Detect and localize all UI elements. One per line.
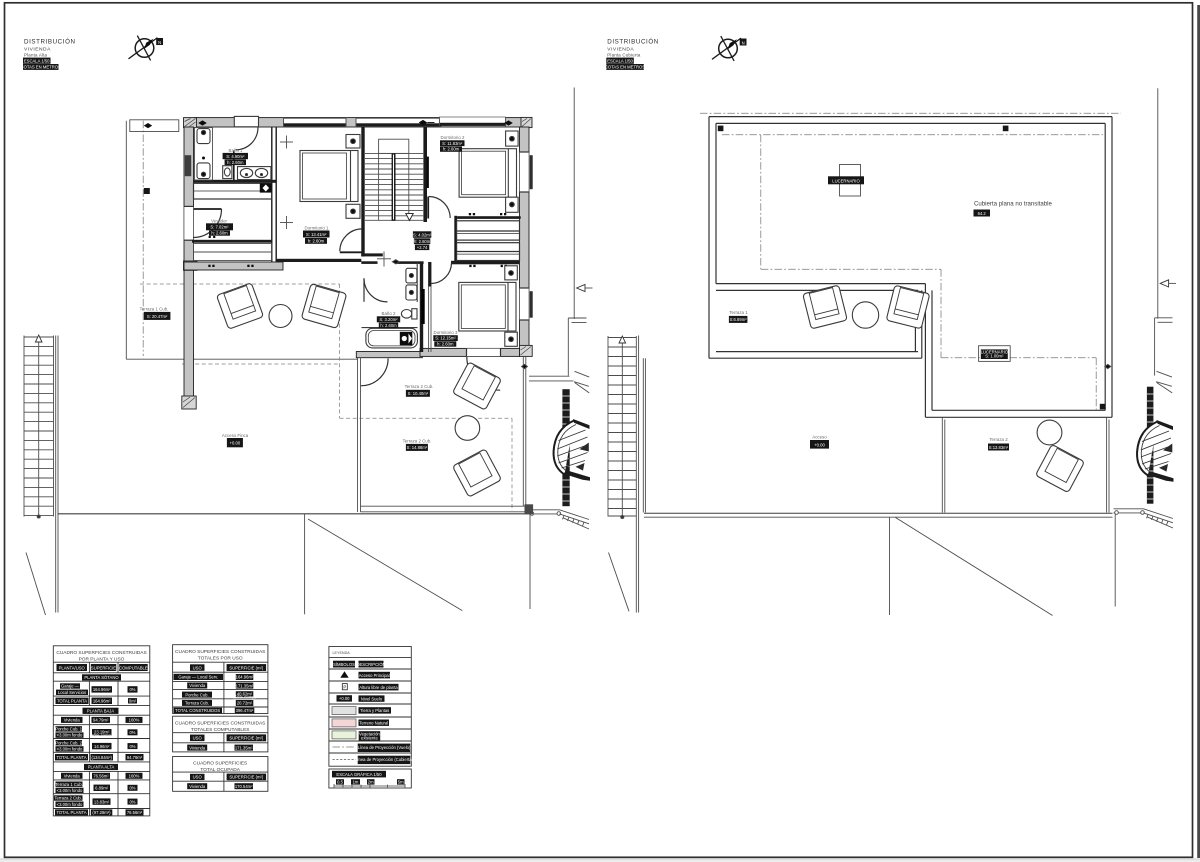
svg-text:94.79m²: 94.79m² (127, 755, 143, 760)
svg-text:h: 2.60m: h: 2.60m (380, 323, 397, 328)
svg-text:Terraza 1 Cub.: Terraza 1 Cub. (140, 307, 169, 312)
svg-text:Cubierta plana no transitable: Cubierta plana no transitable (974, 201, 1053, 208)
svg-text:DESCRIPCIÓN: DESCRIPCIÓN (356, 662, 385, 667)
svg-text:Dormitorio 2: Dormitorio 2 (441, 135, 465, 140)
svg-text:0%: 0% (129, 799, 135, 804)
svg-text:TOTAL OCUPADA: TOTAL OCUPADA (200, 767, 240, 773)
svg-text:Terraza 2 Cub.: Terraza 2 Cub. (54, 796, 81, 801)
svg-text:Planta Alta: Planta Alta (24, 52, 48, 57)
svg-text:Tierra y Plantas: Tierra y Plantas (360, 708, 389, 713)
svg-text:Terraza 1 Cub.: Terraza 1 Cub. (55, 782, 82, 787)
svg-text:S: 14.88m²: S: 14.88m² (407, 445, 428, 450)
svg-text:SUPERFICIE (m²): SUPERFICIE (m²) (229, 775, 264, 780)
svg-text:Baño 1: Baño 1 (229, 148, 243, 153)
svg-text:0%: 0% (129, 786, 135, 791)
svg-text:SÍMBOLOS: SÍMBOLOS (333, 662, 355, 667)
svg-text:Terraza 2 Cub.: Terraza 2 Cub. (403, 439, 432, 444)
svg-text:0m²: 0m² (129, 698, 137, 703)
svg-text:S: 10.40m²: S: 10.40m² (408, 391, 429, 396)
svg-text:Acceso Finca: Acceso Finca (222, 433, 249, 438)
svg-text:S: 3.20m²: S: 3.20m² (379, 317, 398, 322)
svg-text:Garaje — Local Serv.: Garaje — Local Serv. (178, 675, 218, 680)
svg-text:Vivienda: Vivienda (189, 745, 206, 750)
svg-text:N: N (158, 40, 161, 45)
svg-text:Acceso: Acceso (812, 434, 827, 439)
svg-text:h: 2.60m: h: 2.60m (227, 160, 244, 165)
svg-text:94.79m²: 94.79m² (93, 718, 109, 723)
svg-text:<3.00m fondo: <3.00m fondo (57, 747, 83, 752)
svg-text:PLANTA/USO: PLANTA/USO (59, 665, 86, 670)
svg-text:TOTALES POR USO: TOTALES POR USO (198, 656, 243, 662)
svg-text:2m: 2m (368, 779, 374, 784)
svg-text:164.96m²: 164.96m² (93, 687, 111, 692)
svg-text:170.54m²: 170.54m² (235, 784, 253, 789)
svg-text:171.35m²: 171.35m² (236, 683, 254, 688)
svg-text:64.2: 64.2 (978, 211, 987, 216)
svg-text:S: 7.02m²: S: 7.02m² (210, 225, 229, 230)
svg-text:<3.00m fondo: <3.00m fondo (57, 733, 83, 738)
svg-text:PLANTA ALTA: PLANTA ALTA (88, 765, 115, 770)
svg-text:ESCALA 1/50: ESCALA 1/50 (24, 58, 50, 63)
svg-text:20.72m²: 20.72m² (237, 701, 253, 706)
svg-text:S: 4.90m²: S: 4.90m² (226, 154, 245, 159)
svg-text:0%: 0% (129, 687, 135, 692)
svg-text:TOTAL PLANTA: TOTAL PLANTA (56, 810, 86, 815)
svg-text:S:6.89m²: S:6.89m² (730, 317, 748, 322)
svg-text:TOTALES COMPUTABLES: TOTALES COMPUTABLES (191, 727, 250, 733)
svg-text:Terraza Cub.: Terraza Cub. (185, 701, 209, 706)
svg-text:(97.28m²): (97.28m²) (92, 810, 111, 815)
svg-text:Planta Cubierta: Planta Cubierta (607, 52, 641, 57)
svg-text:76.56m²: 76.56m² (127, 810, 143, 815)
svg-text:N: N (742, 40, 745, 45)
svg-text:ESCALA 1/50: ESCALA 1/50 (607, 58, 633, 63)
svg-text:+0.00: +0.00 (339, 696, 350, 701)
svg-text:Línea de Proyección (Vuelo): Línea de Proyección (Vuelo) (358, 745, 411, 750)
svg-text:LEYENDA: LEYENDA (333, 651, 351, 655)
svg-text:<3.00m fondo: <3.00m fondo (57, 788, 83, 793)
svg-text:Terreno Natural: Terreno Natural (359, 721, 388, 726)
svg-text:Vivienda: Vivienda (189, 683, 206, 688)
svg-text:S:13.83m²: S:13.83m² (989, 445, 1009, 450)
svg-text:S: 11.83m²: S: 11.83m² (442, 141, 463, 146)
svg-text:Vivienda: Vivienda (189, 784, 206, 789)
svg-text:5m: 5m (398, 779, 404, 784)
svg-text:50% comp.: 50% comp. (91, 733, 112, 738)
svg-text:TOTAL PLANTA: TOTAL PLANTA (57, 699, 87, 704)
svg-text:100%: 100% (129, 718, 140, 723)
svg-text:Porche Cub.: Porche Cub. (185, 692, 208, 697)
svg-text:COTAS EN METROS: COTAS EN METROS (21, 65, 61, 70)
svg-text:CUADRO SUPERFICIES CONSTRUIDAS: CUADRO SUPERFICIES CONSTRUIDAS (175, 720, 265, 726)
svg-text:USO: USO (193, 736, 203, 741)
svg-text:existente: existente (361, 735, 378, 740)
svg-text:14.96m²: 14.96m² (94, 744, 110, 749)
svg-text:SUPERFICIE (m²): SUPERFICIE (m²) (229, 736, 264, 741)
svg-text:COMPUTABLE: COMPUTABLE (119, 665, 148, 670)
svg-text:S: 20.47m²: S: 20.47m² (147, 314, 168, 319)
svg-text:6.89m²: 6.89m² (95, 786, 109, 791)
svg-text:Dormitorio 1: Dormitorio 1 (305, 225, 329, 230)
svg-text:h: 2.60m: h: 2.60m (414, 239, 431, 244)
svg-text:P: P (343, 685, 346, 690)
svg-text:Acceso Principal: Acceso Principal (359, 673, 390, 678)
svg-text:LUCERNARIO: LUCERNARIO (832, 178, 860, 183)
svg-text:Terraza 2 Cub.: Terraza 2 Cub. (405, 384, 434, 389)
svg-text:PLANTA SÓTANO: PLANTA SÓTANO (84, 675, 119, 680)
svg-text:S: 13.41m²: S: 13.41m² (306, 232, 327, 237)
svg-text:USO: USO (193, 665, 203, 670)
svg-text:396.47m²: 396.47m² (236, 708, 254, 713)
svg-text:h: 2.60m: h: 2.60m (211, 231, 228, 236)
svg-text:1m: 1m (353, 779, 359, 784)
svg-text:0.5: 0.5 (337, 779, 343, 784)
svg-text:76.56m²: 76.56m² (93, 774, 109, 779)
svg-text:164.96m²: 164.96m² (236, 675, 254, 680)
svg-text:Vivienda: Vivienda (64, 718, 81, 723)
svg-text:Local Servicios: Local Servicios (58, 690, 86, 695)
svg-text:DISTRIBUCIÓN: DISTRIBUCIÓN (607, 39, 659, 46)
svg-text:ESCALA GRÁFICA 1/50: ESCALA GRÁFICA 1/50 (336, 772, 382, 777)
svg-text:164.96m²: 164.96m² (93, 699, 111, 704)
svg-text:COTAS EN METROS: COTAS EN METROS (605, 65, 645, 70)
svg-text:Baño 2: Baño 2 (382, 311, 396, 316)
svg-text:+0.00: +0.00 (814, 442, 825, 447)
svg-text:171.35m²: 171.35m² (235, 745, 253, 750)
svg-text:Vivienda: Vivienda (64, 774, 81, 779)
svg-text:(50% comp): (50% comp) (233, 694, 256, 699)
svg-text:S: 4.02m²: S: 4.02m² (413, 232, 432, 237)
svg-text:SUPERFICIE: SUPERFICIE (91, 665, 116, 670)
svg-text:Altura libre de planta: Altura libre de planta (359, 685, 398, 690)
svg-text:USO: USO (193, 775, 203, 780)
svg-text:S: 1.00m²: S: 1.00m² (985, 354, 1004, 359)
svg-text:S: 12.15m²: S: 12.15m² (435, 336, 456, 341)
svg-text:Garaje —: Garaje — (61, 684, 80, 689)
svg-text:PLANTA BAJA: PLANTA BAJA (87, 708, 115, 713)
svg-text:Terraza 2: Terraza 2 (989, 437, 1008, 442)
svg-text:13.83m²: 13.83m² (94, 799, 110, 804)
svg-text:+2.74: +2.74 (417, 245, 428, 250)
svg-text:Nivel Suelo: Nivel Suelo (361, 696, 383, 701)
svg-text:100%: 100% (129, 774, 140, 779)
svg-text:TOTAL CONSTRUIDOS: TOTAL CONSTRUIDOS (175, 708, 220, 713)
svg-text:CUADRO SUPERFICIES: CUADRO SUPERFICIES (193, 761, 247, 767)
svg-text:Línea de Proyección (Cubierta): Línea de Proyección (Cubierta) (355, 757, 414, 762)
svg-text:DISTRIBUCIÓN: DISTRIBUCIÓN (24, 39, 76, 46)
svg-text:0%: 0% (129, 744, 135, 749)
svg-text:Dormitorio 3: Dormitorio 3 (434, 330, 458, 335)
svg-text:TOTAL PLANTA: TOTAL PLANTA (56, 755, 86, 760)
svg-text:h: 2.60m: h: 2.60m (437, 342, 454, 347)
svg-text:Porche Cub. 1: Porche Cub. 1 (55, 727, 82, 732)
svg-text:Terraza 1: Terraza 1 (729, 310, 748, 315)
svg-text:(134.84m²): (134.84m²) (91, 755, 112, 760)
svg-text:h: 2.60m: h: 2.60m (308, 239, 325, 244)
svg-text:POR PLANTA Y USO: POR PLANTA Y USO (79, 656, 125, 662)
svg-text:<3.00m fondo: <3.00m fondo (57, 802, 83, 807)
svg-text:Vestidor: Vestidor (211, 218, 227, 223)
svg-text:0%: 0% (129, 730, 135, 735)
svg-text:+0.00: +0.00 (230, 441, 241, 446)
svg-text:h: 2.60m: h: 2.60m (443, 147, 460, 152)
svg-text:CUADRO SUPERFICIES CONSTRUIDAS: CUADRO SUPERFICIES CONSTRUIDAS (175, 649, 265, 655)
svg-text:CUADRO SUPERFICIES CONSTRUIDAS: CUADRO SUPERFICIES CONSTRUIDAS (56, 650, 146, 656)
svg-text:Porche Cub. 2: Porche Cub. 2 (55, 740, 82, 745)
svg-text:SUPERFICIE (m²): SUPERFICIE (m²) (229, 665, 264, 670)
